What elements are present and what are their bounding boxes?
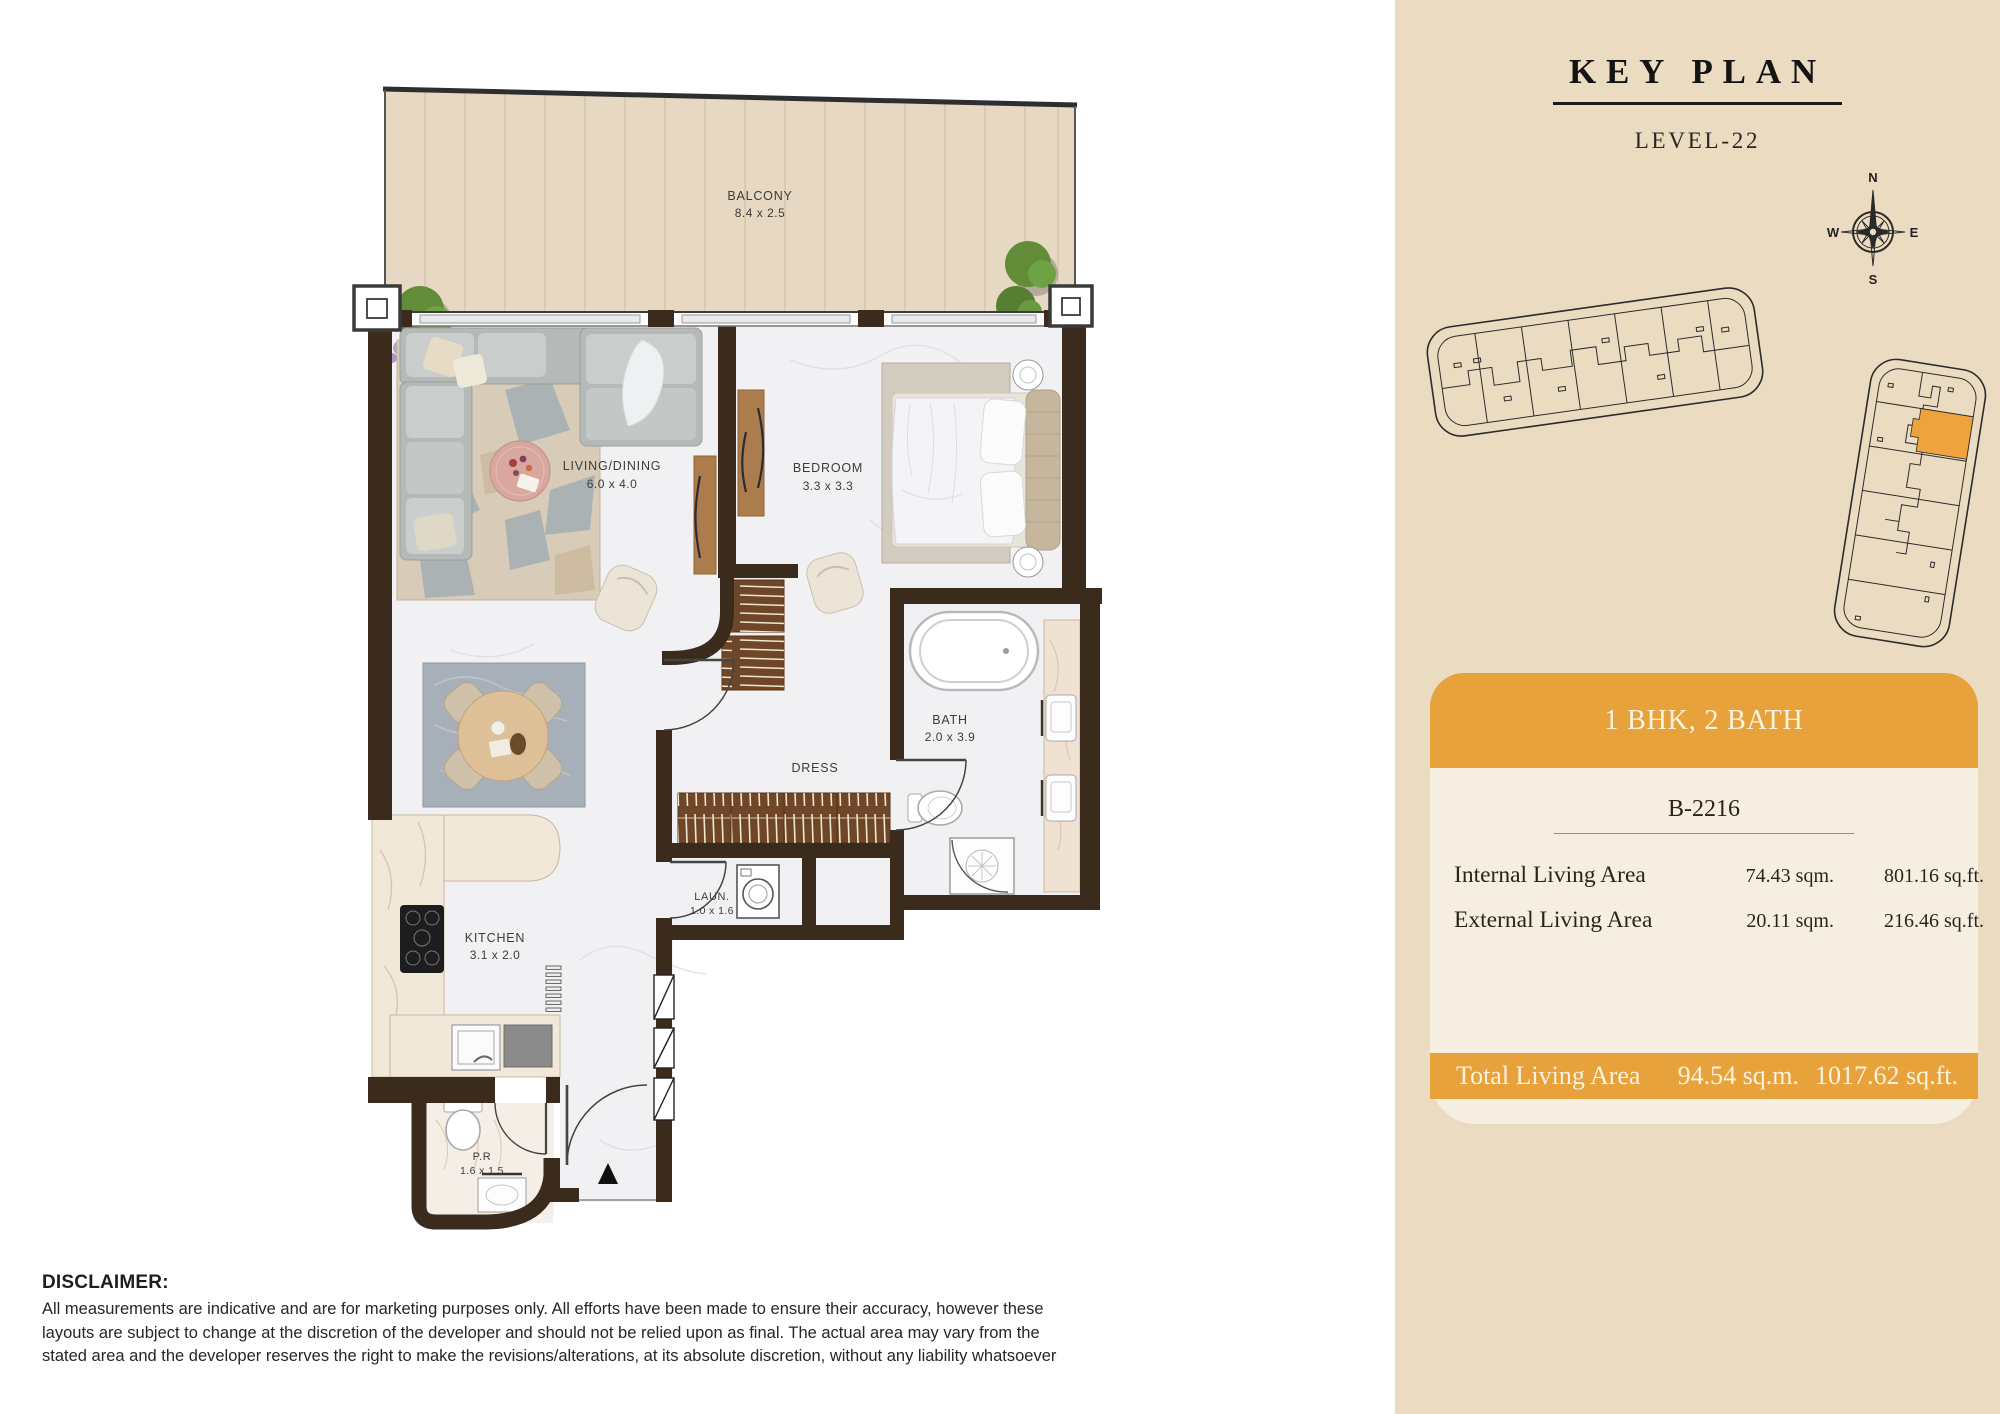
area-row-internal: Internal Living Area 74.43 sqm. 801.16 s… [1430,862,1978,889]
unit-number: B-2216 [1430,796,1978,823]
disclaimer: DISCLAIMER: All measurements are indicat… [42,1272,1082,1369]
area-row-external: External Living Area 20.11 sqm. 216.46 s… [1430,907,1978,934]
label-balcony-dims: 8.4 x 2.5 [735,206,786,220]
highlighted-unit [1908,408,1973,460]
compass-w: W [1827,225,1840,240]
compass-n: N [1868,170,1877,185]
compass-s: S [1869,272,1878,287]
label-bath: BATH [932,713,968,727]
kitchen-sink [452,1025,500,1070]
unit-type-header: 1 BHK, 2 BATH [1430,673,1978,768]
label-laundry-dims: 1.0 x 1.6 [690,905,734,917]
label-kitchen: KITCHEN [465,931,525,945]
label-kitchen-dims: 3.1 x 2.0 [470,948,521,962]
key-plan-title: KEY PLAN [1553,52,1842,105]
unit-card: B-2216 Internal Living Area 74.43 sqm. 8… [1430,768,1978,1124]
disclaimer-heading: DISCLAIMER: [42,1272,1082,1294]
unit-number-underline [1554,833,1854,834]
total-area-sqm: 94.54 sq.m. [1678,1061,1799,1091]
floor-plan: BALCONY 8.4 x 2.5 LIVING/DINING 6.0 x 4.… [250,60,1150,1310]
washer-icon [737,865,779,918]
unit-type-label: 1 BHK, 2 BATH [1604,705,1803,737]
label-bedroom-dims: 3.3 x 3.3 [803,479,854,493]
external-area-sqm: 20.11 sqm. [1709,910,1834,933]
label-pr: P.R [473,1151,492,1163]
label-balcony: BALCONY [727,189,792,203]
total-area-bar: Total Living Area 94.54 sq.m. 1017.62 sq… [1430,1053,1978,1099]
key-plan-panel: KEY PLAN LEVEL-22 N W E S [1395,0,2000,1414]
disclaimer-body: All measurements are indicative and are … [42,1298,1082,1369]
shower [950,838,1014,894]
toilet-icon [908,791,962,825]
vanity [1042,620,1080,892]
compass-e: E [1910,225,1919,240]
total-area-sqft: 1017.62 sq.ft. [1815,1061,1958,1091]
building-a-outline [1415,262,1775,462]
label-living: LIVING/DINING [563,459,662,473]
dress-wardrobe [678,793,890,843]
coffee-table [490,441,550,501]
label-laundry: LAUN. [694,891,729,903]
external-area-label: External Living Area [1454,907,1709,934]
label-pr-dims: 1.6 x 1.5 [460,1165,504,1177]
shaft-hatches [654,975,674,1120]
label-dress: DRESS [791,761,838,775]
bathtub [910,612,1038,690]
building-b-outline [1820,348,2000,658]
label-living-dims: 6.0 x 4.0 [587,477,638,491]
key-plan-level: LEVEL-22 [1395,128,2000,154]
internal-area-sqm: 74.43 sqm. [1709,865,1834,888]
internal-area-sqft: 801.16 sq.ft. [1834,865,1984,888]
label-bedroom: BEDROOM [793,461,863,475]
internal-area-label: Internal Living Area [1454,862,1709,889]
pr-basin [478,1178,526,1212]
dining-set [423,663,585,807]
window-band [392,310,1062,327]
compass-icon: N W E S [1825,168,1921,294]
external-area-sqft: 216.46 sq.ft. [1834,910,1984,933]
label-bath-dims: 2.0 x 3.9 [925,730,976,744]
total-area-label: Total Living Area [1456,1061,1662,1091]
